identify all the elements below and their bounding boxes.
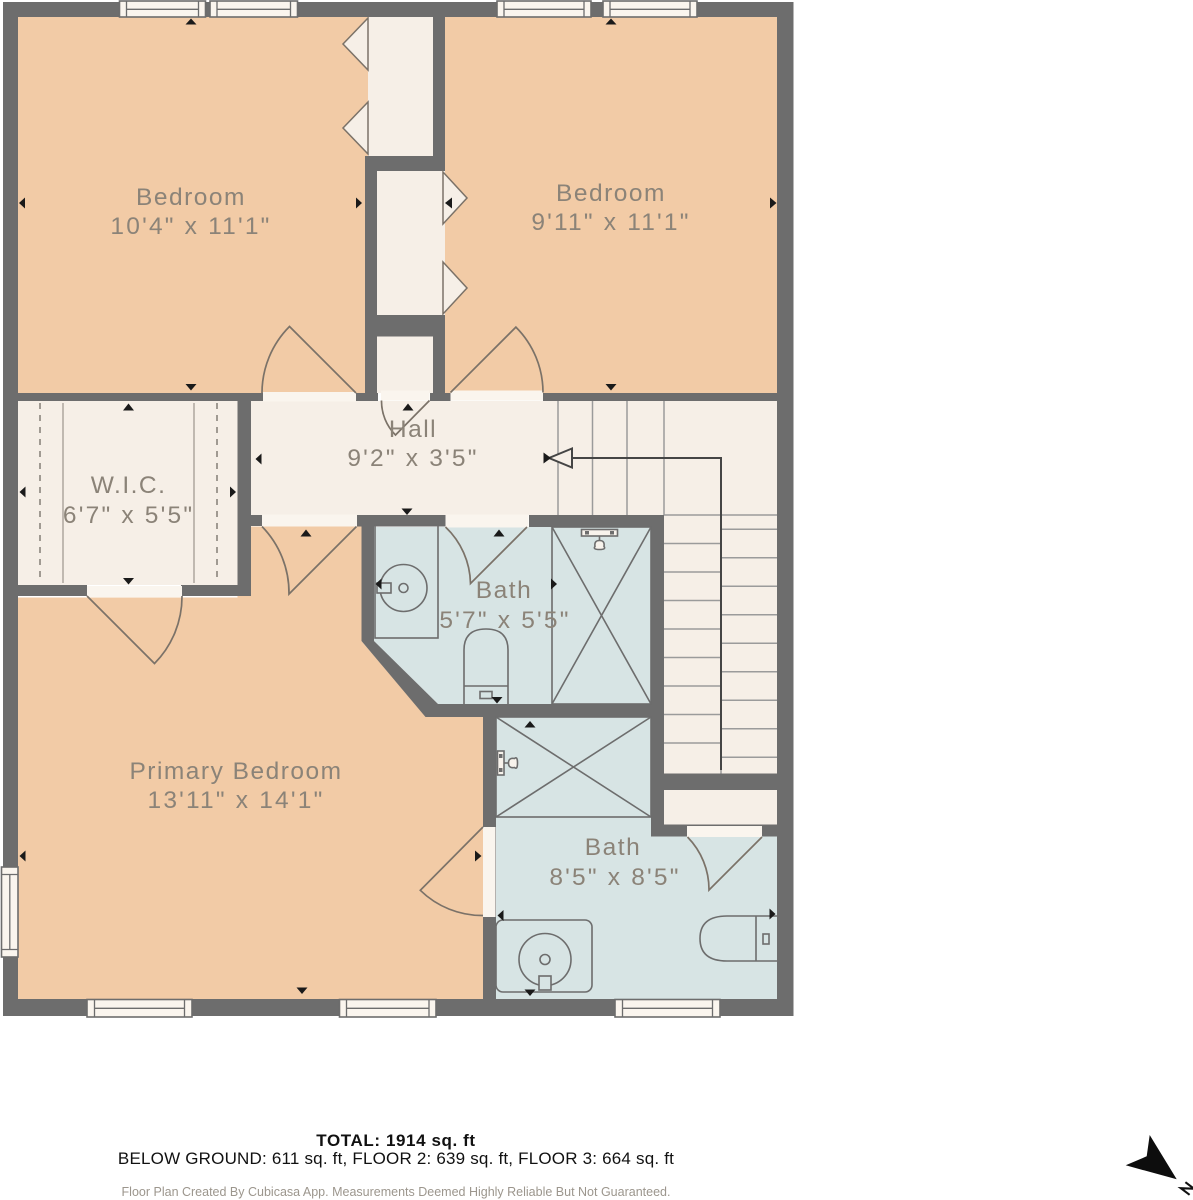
svg-text:Primary Bedroom: Primary Bedroom: [129, 758, 342, 785]
svg-text:8'5" x 8'5": 8'5" x 8'5": [549, 864, 680, 891]
svg-text:Bedroom: Bedroom: [136, 184, 246, 211]
svg-text:Floor Plan Created By Cubicasa: Floor Plan Created By Cubicasa App. Meas…: [122, 1185, 671, 1199]
svg-text:Bath: Bath: [585, 834, 641, 861]
svg-text:9'11" x 11'1": 9'11" x 11'1": [531, 209, 690, 236]
svg-text:W.I.C.: W.I.C.: [91, 472, 167, 499]
svg-text:10'4" x 11'1": 10'4" x 11'1": [110, 213, 271, 240]
svg-text:Bedroom: Bedroom: [556, 180, 666, 207]
svg-text:13'11" x 14'1": 13'11" x 14'1": [148, 787, 325, 814]
svg-text:6'7" x 5'5": 6'7" x 5'5": [63, 502, 194, 529]
svg-text:9'2" x 3'5": 9'2" x 3'5": [347, 445, 478, 472]
svg-text:TOTAL: 1914 sq. ft: TOTAL: 1914 sq. ft: [316, 1131, 475, 1150]
svg-text:BELOW GROUND: 611 sq. ft, FLOO: BELOW GROUND: 611 sq. ft, FLOOR 2: 639 s…: [118, 1149, 674, 1168]
svg-text:Hall: Hall: [389, 416, 437, 443]
svg-text:5'7" x 5'5": 5'7" x 5'5": [439, 607, 570, 634]
svg-text:Bath: Bath: [476, 577, 532, 604]
